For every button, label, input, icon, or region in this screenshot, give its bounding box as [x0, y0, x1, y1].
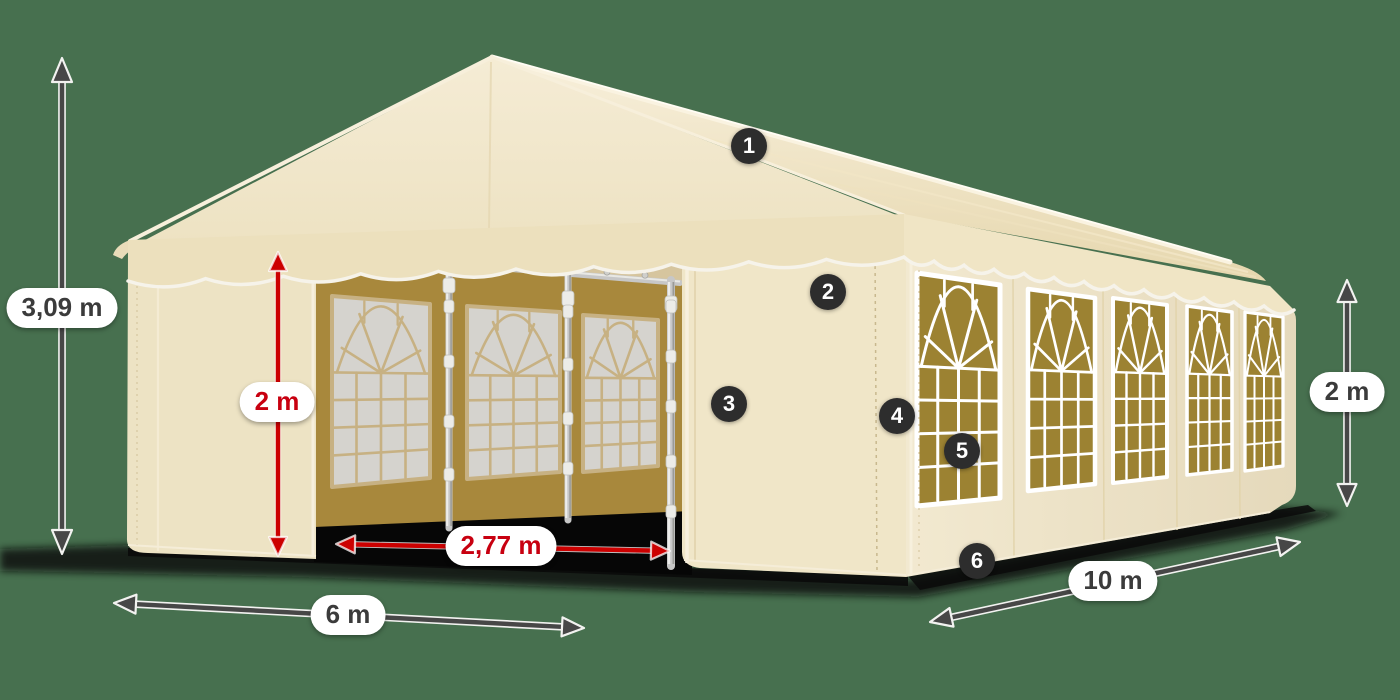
- dimension-label-side-wall-height: 2 m: [1310, 372, 1385, 412]
- dimension-label-total-height: 3,09 m: [7, 288, 118, 328]
- callout-badge-1[interactable]: 1: [731, 128, 767, 164]
- dimension-side-length-text: 10 m: [1083, 565, 1142, 595]
- dimension-label-entrance-height: 2 m: [240, 382, 315, 422]
- tent-interior: [314, 237, 692, 575]
- dimension-label-front-width: 6 m: [311, 595, 386, 635]
- callout-badge-2[interactable]: 2: [810, 274, 846, 310]
- dimension-entrance-height-text: 2 m: [255, 386, 300, 416]
- side-window-3: [1113, 298, 1167, 483]
- side-window-4: [1187, 306, 1232, 475]
- callout-badge-6[interactable]: 6: [959, 543, 995, 579]
- side-window-2: [1028, 289, 1095, 491]
- dimension-label-entrance-width: 2,77 m: [446, 526, 557, 566]
- dimension-side-wall-height-text: 2 m: [1325, 376, 1370, 406]
- interior-window-1: [332, 296, 430, 487]
- tent-diagram-scene: 3,09 m 2 m 2,77 m 6 m 10 m 2 m 1 2 3 4 5…: [0, 0, 1400, 700]
- interior-window-2: [467, 306, 560, 479]
- interior-window-3: [583, 315, 658, 472]
- dimension-entrance-width-text: 2,77 m: [461, 530, 542, 560]
- tent-illustration: [0, 0, 1400, 700]
- dimension-front-width-text: 6 m: [326, 599, 371, 629]
- side-window-5: [1245, 312, 1283, 471]
- callout-badge-5[interactable]: 5: [944, 433, 980, 469]
- dimension-total-height-text: 3,09 m: [22, 292, 103, 322]
- callout-badge-3[interactable]: 3: [711, 386, 747, 422]
- dimension-label-side-length: 10 m: [1068, 561, 1157, 601]
- callout-badge-4[interactable]: 4: [879, 398, 915, 434]
- side-window-1: [917, 273, 1000, 506]
